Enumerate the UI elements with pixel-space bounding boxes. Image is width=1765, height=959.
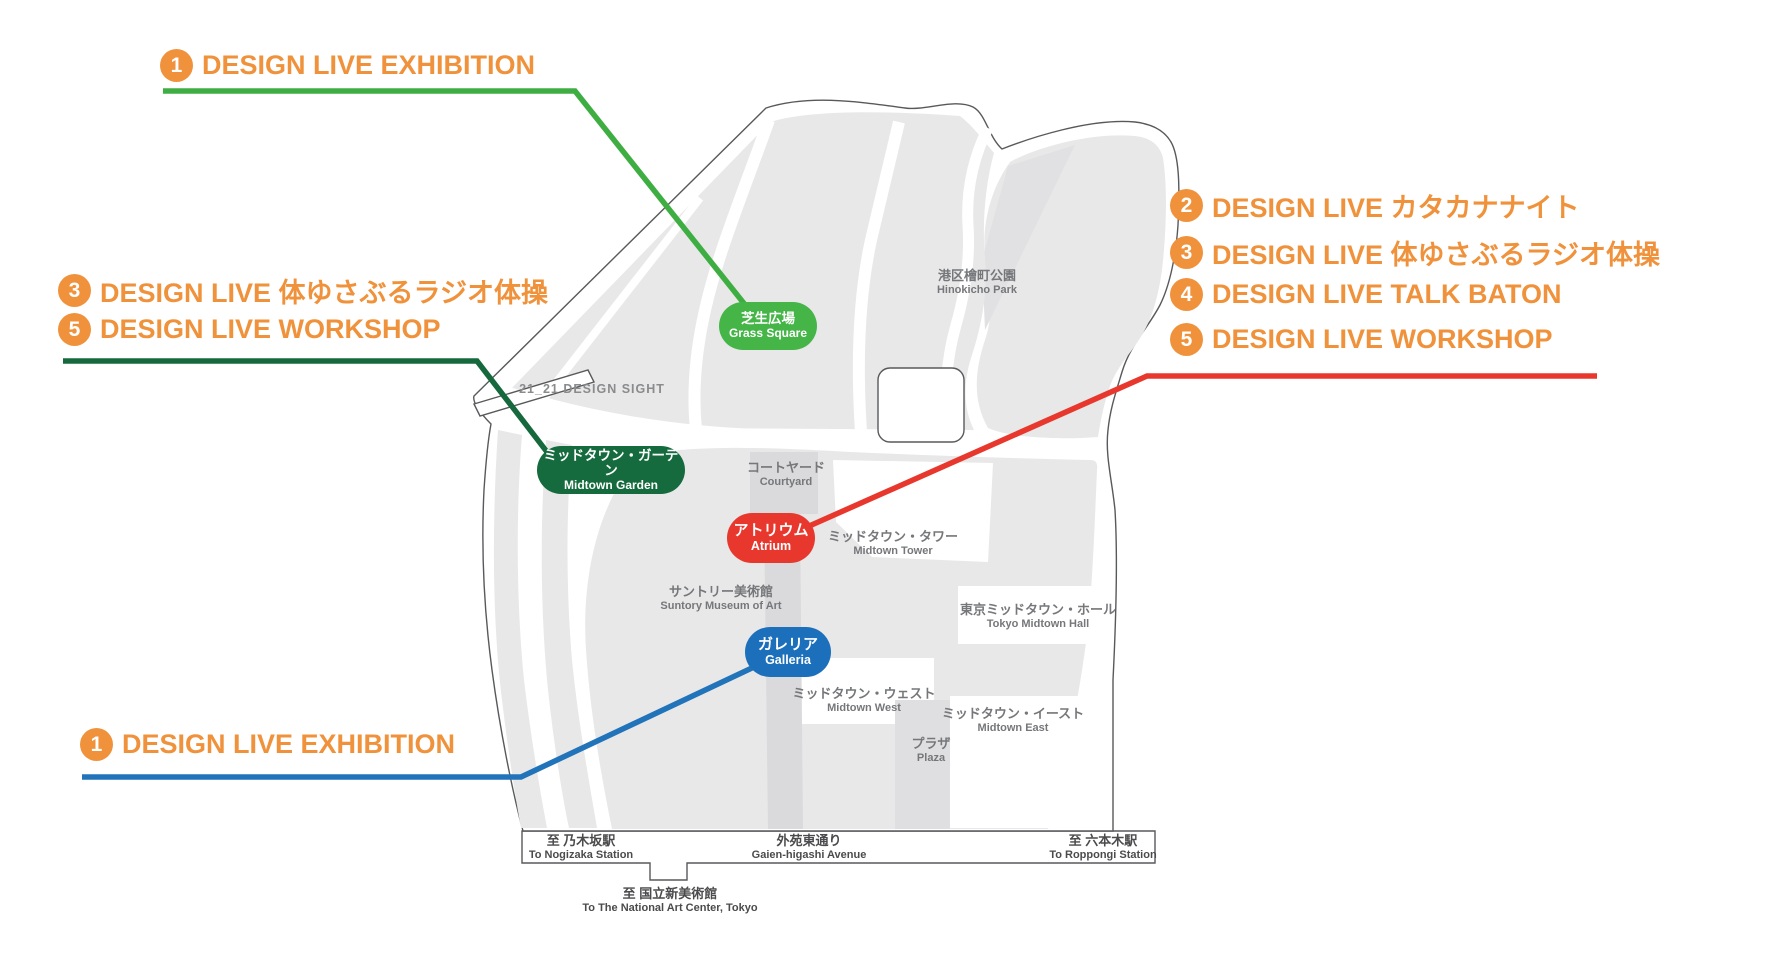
label-jp: コートヤード (747, 460, 825, 476)
legend-number-badge: 2 (1170, 189, 1203, 222)
label-midtown-tower: ミッドタウン・タワー Midtown Tower (828, 529, 958, 559)
legend-label: DESIGN LIVE WORKSHOP (100, 314, 441, 345)
label-jp: 外苑東通り (752, 833, 867, 849)
label-plaza: プラザ Plaza (911, 736, 950, 766)
label-jp: 至 六本木駅 (1049, 833, 1156, 849)
legend-number-badge: 5 (58, 313, 91, 346)
label-en: To The National Art Center, Tokyo (582, 902, 757, 916)
label-jp: 港区檜町公園 (937, 268, 1017, 284)
venue-pill-grass-square: 芝生広場 Grass Square (719, 302, 817, 350)
label-en: To Roppongi Station (1049, 849, 1156, 863)
label-roppongi-station: 至 六本木駅 To Roppongi Station (1049, 833, 1156, 863)
legend-number-badge: 3 (1170, 236, 1203, 269)
legend-label: DESIGN LIVE EXHIBITION (122, 729, 455, 760)
legend-label: DESIGN LIVE 体ゆさぶるラジオ体操 (100, 271, 548, 310)
legend-number-badge: 4 (1170, 278, 1203, 311)
label-midtown-west: ミッドタウン・ウェスト Midtown West (792, 686, 935, 716)
label-en: Midtown West (792, 702, 935, 716)
legend-radio-taiso-right: 3 DESIGN LIVE 体ゆさぶるラジオ体操 (1170, 233, 1660, 272)
legend-number-badge: 3 (58, 274, 91, 307)
label-suntory-museum: サントリー美術館 Suntory Museum of Art (660, 584, 781, 614)
label-en: Tokyo Midtown Hall (960, 618, 1116, 632)
legend-radio-taiso-left: 3 DESIGN LIVE 体ゆさぶるラジオ体操 (58, 271, 548, 310)
legend-label: DESIGN LIVE WORKSHOP (1212, 324, 1553, 355)
label-gaien-higashi-avenue: 外苑東通り Gaien-higashi Avenue (752, 833, 867, 863)
venue-name-jp: 芝生広場 (719, 311, 817, 327)
legend-label: DESIGN LIVE 体ゆさぶるラジオ体操 (1212, 233, 1660, 272)
venue-name-jp: ミッドタウン・ガーデン (537, 448, 685, 479)
legend-talk-baton: 4 DESIGN LIVE TALK BATON (1170, 278, 1562, 311)
venue-pill-galleria: ガレリア Galleria (745, 627, 831, 677)
legend-exhibition-top: 1 DESIGN LIVE EXHIBITION (160, 49, 535, 82)
label-jp: ミッドタウン・ウェスト (792, 686, 935, 702)
label-en: Plaza (911, 752, 950, 766)
legend-label: DESIGN LIVE TALK BATON (1212, 279, 1562, 310)
label-en: Midtown East (942, 722, 1084, 736)
venue-name-en: Midtown Garden (537, 479, 685, 493)
venue-name-en: Grass Square (719, 327, 817, 341)
label-midtown-hall: 東京ミッドタウン・ホール Tokyo Midtown Hall (960, 602, 1116, 632)
label-national-art-center: 至 国立新美術館 To The National Art Center, Tok… (582, 886, 757, 916)
label-en: Gaien-higashi Avenue (752, 849, 867, 863)
label-jp: サントリー美術館 (660, 584, 781, 600)
legend-workshop-left: 5 DESIGN LIVE WORKSHOP (58, 313, 441, 346)
label-jp: 至 国立新美術館 (582, 886, 757, 902)
callout-line-midtown-garden (63, 361, 547, 452)
venue-pill-midtown-garden: ミッドタウン・ガーデン Midtown Garden (537, 446, 685, 494)
label-en: Midtown Tower (828, 545, 958, 559)
park-edge-building (878, 368, 964, 442)
venue-name-en: Galleria (745, 653, 831, 667)
label-nogizaka-station: 至 乃木坂駅 To Nogizaka Station (529, 833, 633, 863)
label-jp: 東京ミッドタウン・ホール (960, 602, 1116, 618)
venue-name-en: Atrium (727, 539, 815, 553)
label-jp: ミッドタウン・タワー (828, 529, 958, 545)
legend-number-badge: 5 (1170, 323, 1203, 356)
legend-label: DESIGN LIVE カタカナナイト (1212, 186, 1580, 225)
legend-label: DESIGN LIVE EXHIBITION (202, 50, 535, 81)
legend-number-badge: 1 (160, 49, 193, 82)
legend-katakana-night: 2 DESIGN LIVE カタカナナイト (1170, 186, 1580, 225)
venue-name-jp: アトリウム (727, 522, 815, 539)
label-en: Courtyard (747, 476, 825, 490)
label-en: Hinokicho Park (937, 284, 1017, 298)
legend-workshop-right: 5 DESIGN LIVE WORKSHOP (1170, 323, 1553, 356)
label-en: Suntory Museum of Art (660, 600, 781, 614)
label-en: To Nogizaka Station (529, 849, 633, 863)
legend-number-badge: 1 (80, 728, 113, 761)
label-hinokicho-park: 港区檜町公園 Hinokicho Park (937, 268, 1017, 298)
venue-pill-atrium: アトリウム Atrium (727, 513, 815, 563)
label-jp: プラザ (911, 736, 950, 752)
map-drawing (0, 0, 1765, 959)
legend-exhibition-bottom: 1 DESIGN LIVE EXHIBITION (80, 728, 455, 761)
label-design-sight: 21_21 DESIGN SIGHT (519, 382, 665, 398)
label-courtyard: コートヤード Courtyard (747, 460, 825, 490)
venue-name-jp: ガレリア (745, 636, 831, 653)
label-jp: ミッドタウン・イースト (942, 706, 1084, 722)
label-jp: 至 乃木坂駅 (529, 833, 633, 849)
label-midtown-east: ミッドタウン・イースト Midtown East (942, 706, 1084, 736)
label-text: 21_21 DESIGN SIGHT (519, 382, 665, 396)
tokyo-midtown-event-map: 1 DESIGN LIVE EXHIBITION 3 DESIGN LIVE 体… (0, 0, 1765, 959)
